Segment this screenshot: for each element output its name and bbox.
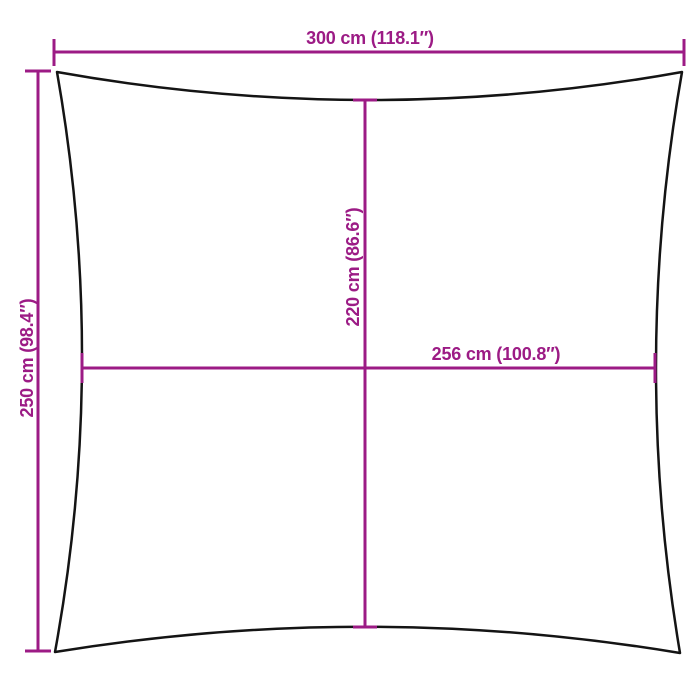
overall-height-dimension-label: 250 cm (98.4″) bbox=[17, 298, 37, 417]
dimension-diagram-canvas: 300 cm (118.1″) 250 cm (98.4″) 220 cm (8… bbox=[0, 0, 700, 700]
sail-outline bbox=[55, 72, 682, 653]
overall-width-dimension-label: 300 cm (118.1″) bbox=[306, 28, 434, 48]
product-dimension-image: 300 cm (118.1″) 250 cm (98.4″) 220 cm (8… bbox=[0, 0, 700, 700]
inner-width-dimension-label: 256 cm (100.8″) bbox=[432, 344, 561, 364]
inner-height-dimension-label: 220 cm (86.6″) bbox=[343, 207, 363, 326]
